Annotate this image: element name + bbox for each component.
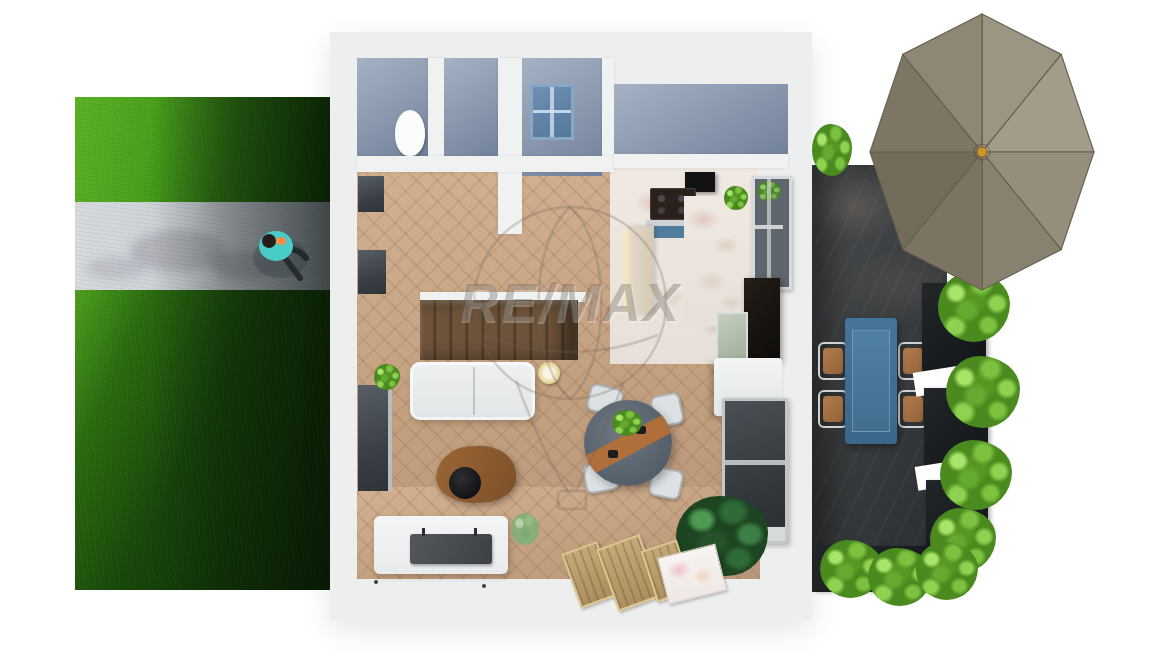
interior-wall bbox=[614, 154, 788, 168]
left-window bbox=[358, 250, 386, 294]
person-head bbox=[262, 234, 276, 248]
dining-table bbox=[584, 400, 672, 486]
serving-tray bbox=[449, 467, 481, 499]
hedge-bush bbox=[940, 440, 1012, 510]
floorplan-render: RE/MAX RE/MAX bbox=[0, 0, 1160, 666]
counter-light-strip bbox=[624, 230, 629, 312]
tv-foot bbox=[422, 528, 425, 536]
table-setting bbox=[608, 450, 618, 458]
floor-socket bbox=[482, 584, 486, 588]
floor-socket bbox=[374, 580, 378, 584]
entry-door bbox=[358, 176, 384, 212]
interior-wall bbox=[357, 156, 614, 172]
television bbox=[410, 534, 492, 564]
burner bbox=[658, 207, 665, 214]
kitchen-counter bbox=[628, 226, 654, 314]
house bbox=[330, 32, 812, 620]
console-plant bbox=[511, 513, 539, 545]
patio-table bbox=[845, 318, 897, 444]
tv-foot bbox=[474, 528, 477, 536]
interior-wall bbox=[498, 58, 522, 234]
hedge-bush bbox=[946, 356, 1020, 428]
umbrella-finial bbox=[977, 147, 987, 157]
kitchen-window bbox=[752, 176, 792, 290]
sofa bbox=[410, 362, 535, 420]
kitchen-sink bbox=[716, 312, 748, 362]
skylight-window bbox=[530, 84, 574, 140]
wc-room bbox=[357, 58, 428, 160]
fridge-cabinet bbox=[744, 278, 780, 362]
patio-chair bbox=[818, 390, 848, 428]
landing-room bbox=[614, 84, 788, 158]
person-body bbox=[259, 231, 293, 261]
burner bbox=[658, 195, 665, 202]
window-bar bbox=[767, 179, 771, 281]
toilet bbox=[395, 110, 425, 156]
hedge-bush bbox=[916, 542, 978, 600]
left-window-large bbox=[358, 385, 392, 491]
patio-chair bbox=[818, 342, 848, 380]
person-bag bbox=[276, 237, 286, 245]
person-walking bbox=[248, 218, 312, 294]
house-shadow-on-yard bbox=[75, 97, 330, 590]
garden-yard bbox=[75, 97, 330, 590]
interior-wall bbox=[428, 58, 444, 172]
interior-wall bbox=[602, 58, 614, 170]
kitchen-backsplash-floor bbox=[684, 196, 752, 326]
staircase bbox=[420, 300, 578, 360]
stair-void-room bbox=[444, 58, 498, 160]
table-lamp bbox=[538, 362, 560, 384]
garden-umbrella bbox=[868, 12, 1096, 294]
